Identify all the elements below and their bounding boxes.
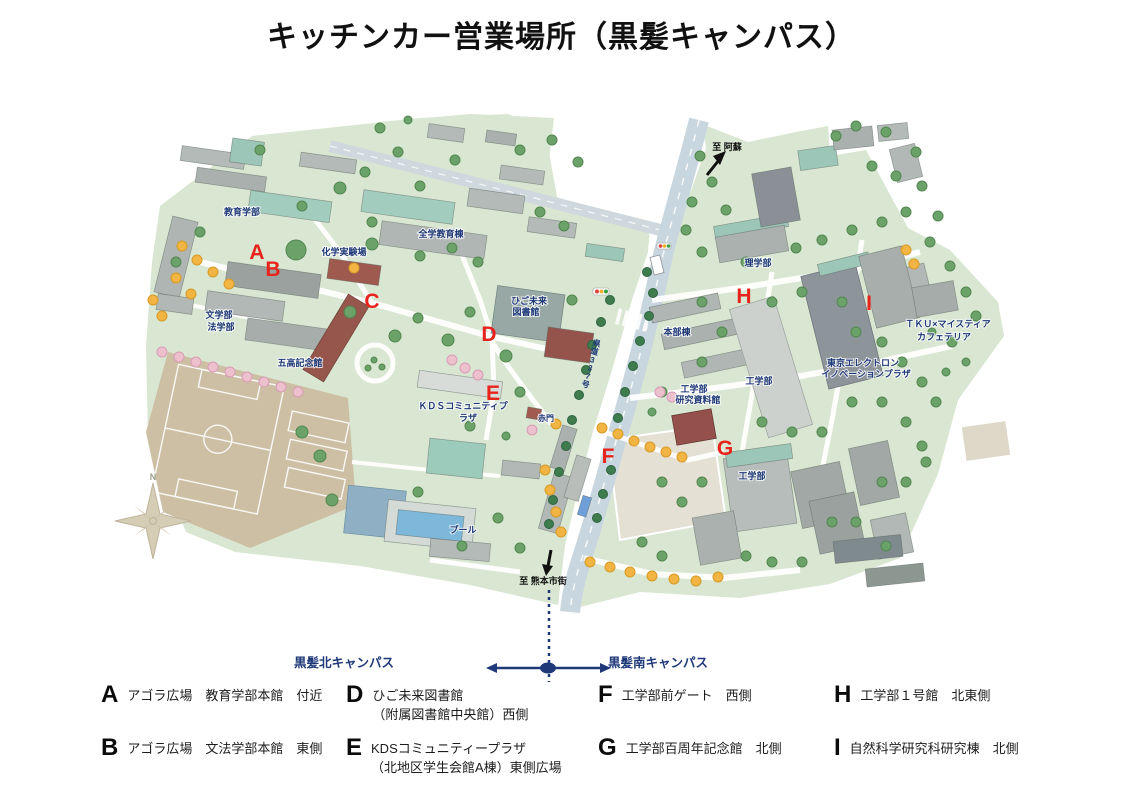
map-label-7: 図書館 bbox=[512, 306, 539, 317]
map-marker-B: B bbox=[265, 258, 280, 281]
map-label-21: 工学部 bbox=[738, 470, 765, 481]
map-label-16: 工学部 bbox=[745, 375, 772, 386]
map-marker-A: A bbox=[249, 241, 264, 264]
arrow-left-icon bbox=[486, 663, 497, 673]
selector-dot bbox=[540, 663, 556, 674]
to-aso-label: 至 阿蘇 bbox=[712, 141, 742, 152]
map-label-0: 教育学部 bbox=[223, 206, 260, 217]
map-label-19: ＴＫＵ×マイスティア bbox=[905, 319, 990, 329]
compass-north-label: N bbox=[150, 472, 157, 482]
map-label-12: 本部棟 bbox=[663, 326, 691, 337]
campus-map: N 至 阿蘇 至 熊本市街 教育学部化学実験場全学教育棟文学部法学部五高記念館ひ… bbox=[0, 0, 1123, 794]
page-title: キッチンカー営業場所（黒髪キャンパス） bbox=[0, 12, 1123, 56]
map-label-20: カフェテリア bbox=[917, 332, 971, 342]
map-label-10: 赤門 bbox=[538, 413, 554, 423]
map-label-4: 法学部 bbox=[207, 321, 234, 332]
map-marker-H: H bbox=[736, 285, 751, 308]
map-label-9: ラザ bbox=[459, 413, 477, 423]
map-label-13: 理学部 bbox=[744, 257, 771, 268]
map-marker-I: I bbox=[866, 292, 872, 315]
campus-map-page: キッチンカー営業場所（黒髪キャンパス） bbox=[0, 0, 1123, 794]
map-label-1: 化学実験場 bbox=[321, 246, 366, 257]
east-court bbox=[962, 421, 1010, 461]
map-label-3: 文学部 bbox=[204, 309, 232, 320]
campus-selector: 黒髪北キャンパス 黒髪南キャンパス bbox=[294, 590, 708, 682]
map-label-15: 研究資料館 bbox=[675, 394, 720, 405]
map-marker-C: C bbox=[364, 290, 379, 313]
south-campus-label: 黒髪南キャンパス bbox=[608, 655, 708, 670]
map-marker-D: D bbox=[481, 323, 496, 346]
map-label-2: 全学教育棟 bbox=[417, 228, 464, 239]
map-label-5: 五高記念館 bbox=[277, 357, 322, 368]
map-label-14: 工学部 bbox=[680, 383, 707, 394]
map-label-18: イノベーションプラザ bbox=[821, 368, 911, 379]
map-label-11: プール bbox=[449, 524, 476, 535]
map-marker-E: E bbox=[486, 382, 500, 405]
map-label-17: 東京エレクトロン bbox=[827, 357, 899, 368]
map-marker-F: F bbox=[602, 445, 615, 468]
north-campus-label: 黒髪北キャンパス bbox=[294, 655, 394, 670]
map-marker-G: G bbox=[717, 437, 733, 460]
map-label-6: ひご未来 bbox=[511, 295, 548, 306]
to-kumamoto-city-label: 至 熊本市街 bbox=[519, 575, 567, 586]
